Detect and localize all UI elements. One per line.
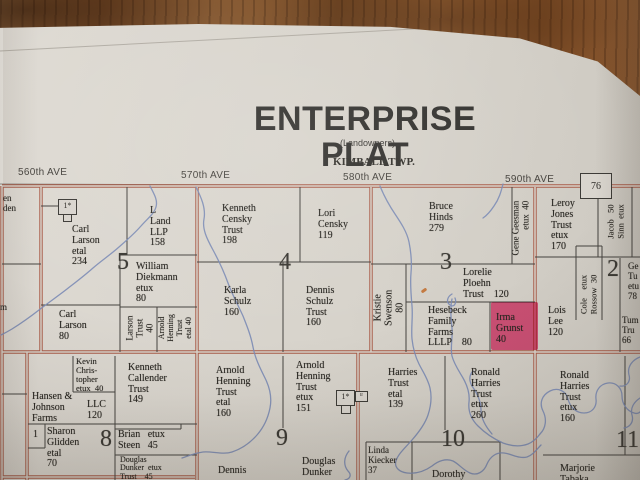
avenue-label-590th: 590th AVE	[505, 175, 554, 185]
parcel-label-sharon-glidden: Sharon Glidden etal 70	[47, 427, 79, 470]
parcel-label-douglas-dunker-cut: Douglas Dunker	[302, 457, 335, 479]
parcel-label-douglas-dunker-tr: Douglas Dunker etux Trust 45	[120, 456, 162, 480]
photo-of-plat-map: ENTERPRISE PLAT (Landowners) KIMBALL TWP…	[0, 0, 640, 480]
page-number-box: 76	[580, 173, 612, 199]
township-label: KIMBALL TWP.	[333, 157, 415, 168]
parcel-label-irma-grunst: Irma Grunst 40	[496, 313, 523, 345]
avenue-label-580th: 580th AVE	[343, 173, 392, 183]
farmstead-icon-tab	[341, 405, 351, 414]
parcel-label-l-land-llp: L Land LLP 158	[150, 206, 171, 249]
section-number-10: 10	[441, 427, 465, 451]
section-number-9: 9	[276, 426, 288, 450]
section-number-3: 3	[440, 250, 452, 274]
farmstead-icon: 1*	[336, 390, 355, 406]
parcel-label-lorelie-ploehn: Lorelie Ploehn Trust 120	[463, 268, 509, 300]
avenue-label-560th: 560th AVE	[18, 168, 67, 178]
farmstead-icon-tab	[63, 214, 72, 222]
parcel-label-lois-lee: Lois Lee 120	[548, 306, 566, 338]
parcel-label-lot-1: 1	[33, 430, 38, 441]
parcel-label-kenneth-censky: Kenneth Censky Trust 198	[222, 204, 256, 247]
plat-subtitle: (Landowners)	[330, 139, 405, 148]
parcel-label-william-diekmann: William Diekmann etux 80	[136, 262, 178, 305]
parcel-label-hesebeck-farms: Hesebeck Family Farms LLLP 80	[428, 306, 472, 349]
parcel-label-dennis-cut: Dennis	[218, 466, 246, 477]
parcel-label-linda-kiecker: Linda Kiecker 37	[368, 446, 396, 476]
parcel-label-kevin-christopher: Kevin Chris- topher etux 40	[76, 357, 103, 393]
parcel-label-carl-larson-80: Carl Larson 80	[59, 310, 87, 342]
parcel-label-dorothy-cut: Dorothy	[432, 470, 465, 480]
section-number-8: 8	[100, 427, 112, 451]
parcel-label-ronald-harries-260: Ronald Harries Trust etux 260	[471, 368, 500, 422]
parcel-label-bruce-hinds: Bruce Hinds 279	[429, 202, 453, 234]
parcel-label-hansen-johnson: Hansen & Johnson Farms	[32, 392, 72, 424]
farmstead-icon: 1*	[58, 199, 77, 215]
section-number-4: 4	[279, 250, 291, 274]
parcel-label-carl-larson-etal: Carl Larson etal 234	[72, 225, 100, 268]
parcel-label-arnold-henning-151: Arnold Henning Trust etux 151	[296, 361, 330, 415]
parcel-label-kenneth-callender: Kenneth Callender Trust 149	[128, 363, 167, 406]
parcel-label-leroy-jones: Leroy Jones Trust etux 170	[551, 199, 575, 253]
parcel-label-ronald-harries-160: Ronald Harries Trust etux 160	[560, 371, 589, 425]
parcel-label-cut-right-2: Tum Tru 66	[622, 316, 639, 346]
parcel-label-brian-steen: Brian etux Steen 45	[118, 430, 165, 452]
parcel-label-harries-trust: Harries Trust etal 139	[388, 368, 417, 411]
avenue-label-570th: 570th AVE	[181, 171, 230, 181]
parcel-label-lori-censky: Lori Censky 119	[318, 209, 348, 241]
parcel-label-arnold-henning-160: Arnold Henning Trust etal 160	[216, 366, 250, 420]
parcel-label-karla-schulz: Karla Schulz 160	[224, 286, 251, 318]
section-number-2: 2	[607, 257, 619, 281]
parcel-label-cut-right-1: Ge Tu etu 78	[628, 262, 639, 302]
parcel-label-hansen-johnson-llc: LLC 120	[87, 400, 106, 422]
parcel-label-dennis-schulz: Dennis Schulz Trust 160	[306, 286, 334, 329]
parcel-label-cut-left-top: en den	[3, 194, 16, 214]
parcel-label-cut-left-mid: m	[0, 303, 7, 313]
parcel-label-marjorie-cut: Marjorie Tabaka	[560, 464, 595, 480]
farmstead-tag-icon: tr	[355, 391, 368, 402]
section-number-5: 5	[117, 250, 129, 274]
section-number-11: 11	[616, 428, 639, 452]
